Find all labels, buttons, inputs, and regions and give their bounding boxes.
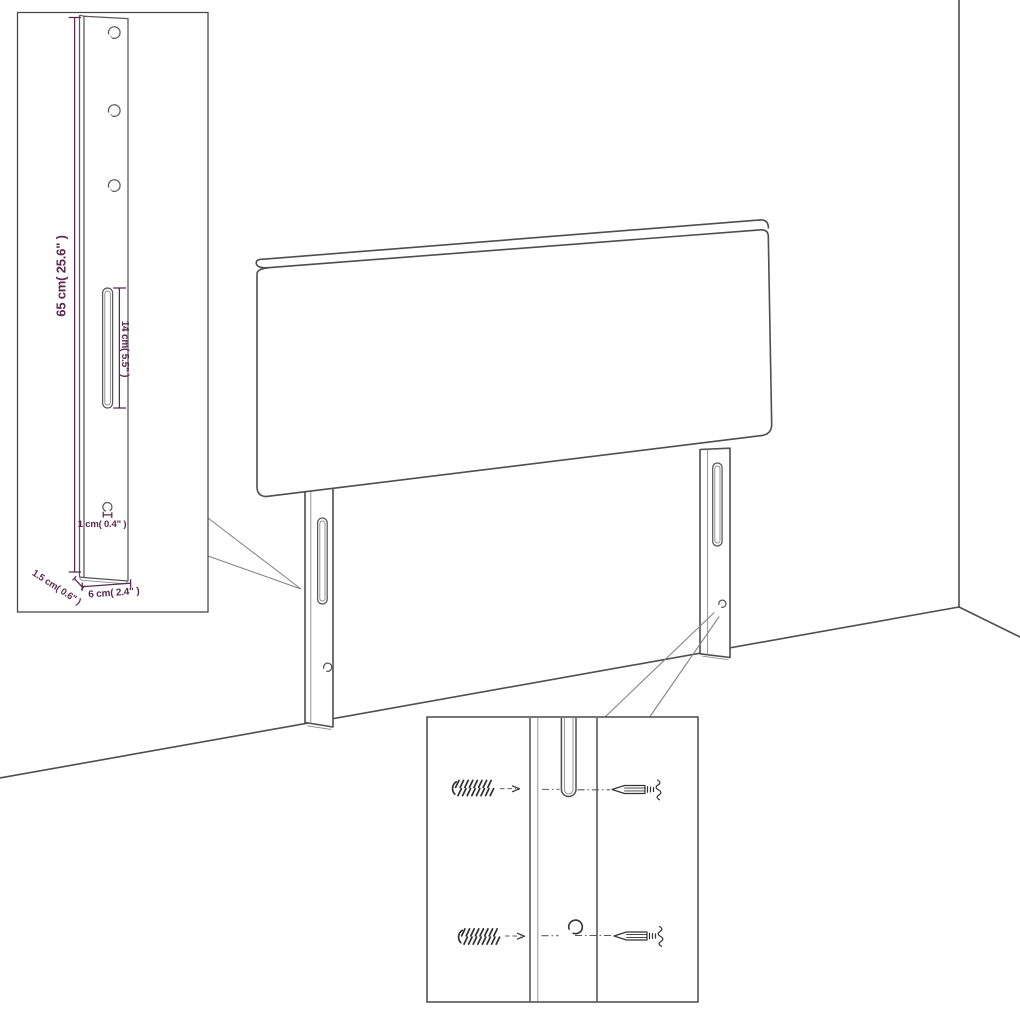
headboard-panel xyxy=(256,220,772,497)
height-dimension-label: 65 cm( 25.6" ) xyxy=(54,235,69,316)
slot-dimension-label: 14 cm( 5.5" ) xyxy=(119,321,130,378)
headboard-right-leg xyxy=(700,448,730,660)
hardware-inset xyxy=(427,717,698,1002)
leg-post-detail xyxy=(80,15,129,584)
headboard-left-leg xyxy=(305,468,333,730)
panel-top-right-curl xyxy=(760,220,768,228)
floor-line-right xyxy=(959,607,1020,637)
hole-dimension-label: 1 cm( 0.4" ) xyxy=(78,519,127,530)
hardware-inset-frame xyxy=(427,717,698,1002)
diagram-canvas: 65 cm( 25.6" ) 14 cm( 5.5" ) 1 cm( 0.4" … xyxy=(0,0,1020,1020)
headboard-assembly-diagram: 65 cm( 25.6" ) 14 cm( 5.5" ) 1 cm( 0.4" … xyxy=(0,0,1020,1020)
left-inset-leader-lines xyxy=(208,518,301,589)
panel-top-left-curl xyxy=(256,259,268,268)
dimension-inset: 65 cm( 25.6" ) 14 cm( 5.5" ) 1 cm( 0.4" … xyxy=(18,13,209,613)
